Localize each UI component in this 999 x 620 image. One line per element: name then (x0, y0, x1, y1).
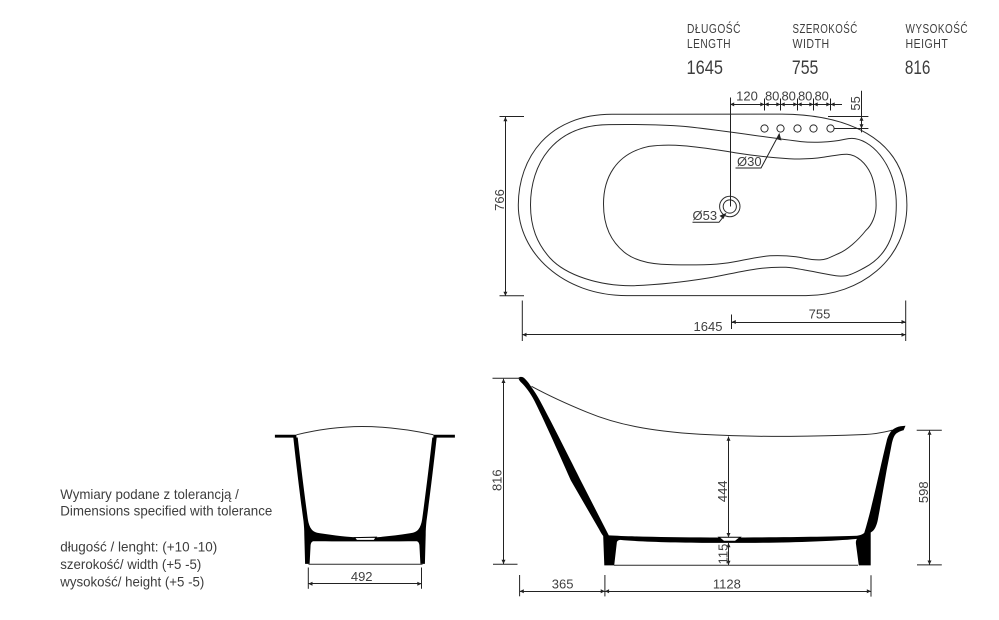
svg-text:1128: 1128 (713, 577, 741, 592)
svg-text:HEIGHT: HEIGHT (906, 37, 949, 51)
svg-text:1645: 1645 (694, 319, 723, 334)
svg-text:816: 816 (490, 469, 505, 491)
svg-text:długość / lenght: (+10 -10): długość / lenght: (+10 -10) (60, 539, 217, 555)
svg-text:365: 365 (552, 576, 574, 591)
svg-text:80: 80 (814, 88, 828, 103)
svg-text:WYSOKOŚĆ: WYSOKOŚĆ (906, 21, 969, 36)
svg-text:755: 755 (809, 307, 831, 322)
svg-text:DŁUGOŚĆ: DŁUGOŚĆ (687, 21, 741, 36)
svg-text:492: 492 (351, 569, 373, 584)
svg-text:SZEROKOŚĆ: SZEROKOŚĆ (793, 21, 858, 36)
svg-text:80: 80 (798, 88, 812, 103)
svg-text:80: 80 (781, 88, 795, 103)
svg-text:WIDTH: WIDTH (793, 37, 830, 51)
svg-text:Ø30: Ø30 (737, 154, 762, 169)
svg-text:1645: 1645 (687, 58, 724, 79)
svg-text:szerokość/ width (+5 -5): szerokość/ width (+5 -5) (60, 556, 201, 572)
svg-text:444: 444 (715, 480, 730, 502)
svg-text:115: 115 (715, 544, 730, 565)
svg-text:598: 598 (916, 481, 931, 503)
svg-text:wysokość/ height (+5 -5): wysokość/ height (+5 -5) (59, 573, 204, 589)
svg-text:Ø53: Ø53 (693, 208, 718, 223)
svg-text:816: 816 (905, 58, 931, 79)
svg-text:Dimensions specified with tole: Dimensions specified with tolerance (60, 503, 272, 519)
svg-text:Wymiary podane z tolerancją /: Wymiary podane z tolerancją / (60, 486, 239, 502)
svg-text:55: 55 (848, 96, 863, 110)
svg-text:755: 755 (792, 58, 819, 79)
svg-text:80: 80 (765, 88, 779, 103)
svg-text:766: 766 (492, 189, 507, 211)
svg-text:LENGTH: LENGTH (687, 37, 731, 51)
svg-text:120: 120 (736, 88, 758, 103)
